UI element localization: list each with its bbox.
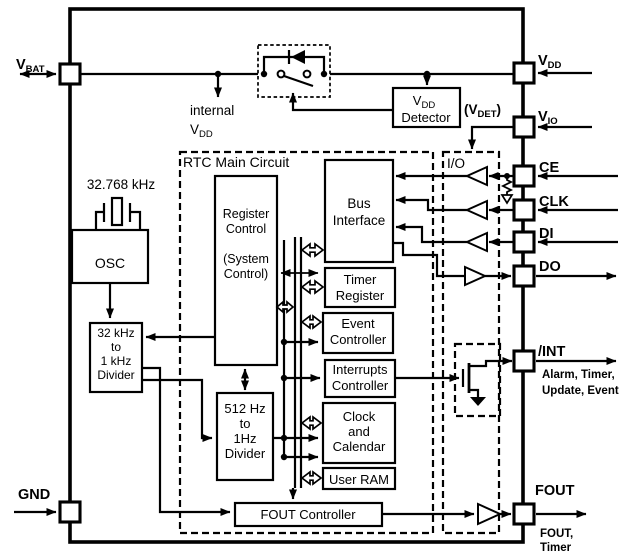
ce-label: CE: [539, 160, 559, 176]
clock-calendar-block: Clock and Calendar: [323, 403, 395, 463]
svg-text:Controller: Controller: [330, 332, 387, 347]
int-events-note-2: Update, Event: [542, 385, 619, 397]
clk-label: CLK: [539, 194, 569, 210]
bus-userram-bidir: [302, 472, 321, 484]
fout-buffer-icon: [478, 504, 500, 524]
svg-text:Controller: Controller: [332, 378, 389, 393]
divider-512-block: 512 Hz to 1Hz Divider: [217, 393, 273, 480]
pin-do: [514, 266, 534, 286]
svg-text:Control: Control: [226, 222, 266, 236]
register-control-block: Register Control (System Control): [215, 176, 277, 365]
svg-text:User RAM: User RAM: [329, 472, 389, 487]
svg-text:internal: internal: [190, 103, 234, 118]
svg-text:Clock: Clock: [343, 409, 376, 424]
fout-events-note-2: Timer: [540, 542, 572, 553]
svg-text:Divider: Divider: [97, 368, 134, 382]
do-label: DO: [539, 259, 561, 275]
svg-text:VDD: VDD: [190, 122, 213, 140]
diode-icon: [289, 50, 305, 64]
vio-label: VIO: [538, 109, 558, 127]
svg-text:32 kHz: 32 kHz: [97, 326, 134, 340]
int-events-note-1: Alarm, Timer,: [542, 369, 615, 381]
svg-text:1 kHz: 1 kHz: [101, 354, 132, 368]
svg-text:Detector: Detector: [401, 110, 451, 125]
bus-event-bidir: [302, 316, 321, 328]
event-controller-block: Event Controller: [323, 313, 393, 353]
switch-icon: [278, 71, 313, 86]
pin-vdd: [514, 63, 534, 83]
svg-text:Interrupts: Interrupts: [333, 362, 388, 377]
svg-text:Bus: Bus: [347, 196, 371, 211]
pulldown-resistor-icon: [502, 173, 512, 203]
diagram-canvas: VDD Detector (VDET) internal VDD RTC Mai…: [0, 0, 625, 553]
svg-text:Register: Register: [223, 207, 270, 221]
divider-32k-block: 32 kHz to 1 kHz Divider: [90, 323, 142, 392]
svg-text:1Hz: 1Hz: [233, 431, 256, 446]
svg-text:512 Hz: 512 Hz: [224, 401, 265, 416]
switch-control-wire: [293, 93, 395, 110]
crystal-icon: [96, 198, 140, 230]
pin-di: [514, 232, 534, 252]
svg-text:to: to: [240, 416, 251, 431]
svg-text:and: and: [348, 424, 370, 439]
rtc-block-diagram: VDD Detector (VDET) internal VDD RTC Mai…: [0, 0, 625, 553]
power-switch-region: [258, 45, 330, 97]
di-buffer-icon: [467, 233, 487, 251]
do-buffer-icon: [465, 267, 485, 285]
vdd-detector-block: VDD Detector (VDET): [393, 88, 501, 127]
rtc-region-label: RTC Main Circuit: [183, 154, 289, 170]
oscillator: 32.768 kHz OSC: [72, 177, 155, 318]
svg-text:Interface: Interface: [333, 213, 386, 228]
bus-clockcal-bidir: [302, 417, 321, 429]
svg-text:Register: Register: [336, 288, 385, 303]
di-label: DI: [539, 226, 554, 242]
vdet-note: (VDET): [464, 102, 501, 120]
clk-buffer-icon: [467, 201, 487, 219]
svg-text:(System: (System: [223, 252, 269, 266]
internal-vdd-note: internal VDD: [190, 103, 234, 140]
svg-text:Timer: Timer: [344, 272, 377, 287]
svg-text:Control): Control): [224, 267, 268, 281]
pin-fout: [514, 504, 534, 524]
pin-vbat: [60, 64, 80, 84]
ground-icon: [470, 397, 486, 406]
mosfet-icon: [463, 361, 512, 397]
osc-freq-label: 32.768 kHz: [87, 177, 156, 192]
svg-text:OSC: OSC: [95, 255, 125, 271]
pin-int: [514, 351, 534, 371]
svg-text:to: to: [111, 340, 121, 354]
fout-label: FOUT: [535, 483, 575, 499]
gnd-label: GND: [18, 487, 50, 503]
timer-register-block: Timer Register: [325, 268, 395, 307]
bus-businterface-bidir: [302, 244, 323, 256]
pin-gnd: [60, 502, 80, 522]
bus-timer-bidir: [302, 281, 323, 293]
external-wires: [14, 73, 618, 514]
interrupts-controller-block: Interrupts Controller: [325, 360, 395, 397]
vio-supply-wire: [472, 127, 514, 149]
user-ram-block: User RAM: [323, 468, 395, 489]
vbat-label: VBAT: [16, 57, 45, 75]
pin-vio: [514, 117, 534, 137]
fout-controller-block: FOUT Controller: [235, 503, 382, 526]
data-bus: [273, 237, 323, 499]
ce-buffer-icon: [467, 167, 487, 185]
svg-text:FOUT Controller: FOUT Controller: [260, 507, 356, 522]
bus-interface-block: Bus Interface: [325, 160, 393, 262]
clock-to-512-wire: [142, 380, 212, 438]
fout-events-note-1: FOUT,: [540, 528, 573, 540]
io-buffers: [393, 127, 514, 285]
vdd-label: VDD: [538, 53, 562, 71]
svg-text:Event: Event: [341, 316, 375, 331]
pin-ce: [514, 166, 534, 186]
pins: [60, 63, 534, 524]
io-region-label: I/O: [447, 156, 465, 171]
svg-text:Calendar: Calendar: [333, 439, 386, 454]
int-label: /INT: [538, 344, 566, 360]
pin-clk: [514, 200, 534, 220]
battery-switch: [261, 50, 395, 110]
fout-path: [382, 504, 511, 524]
svg-text:Divider: Divider: [225, 446, 266, 461]
int-open-drain: [395, 361, 512, 406]
